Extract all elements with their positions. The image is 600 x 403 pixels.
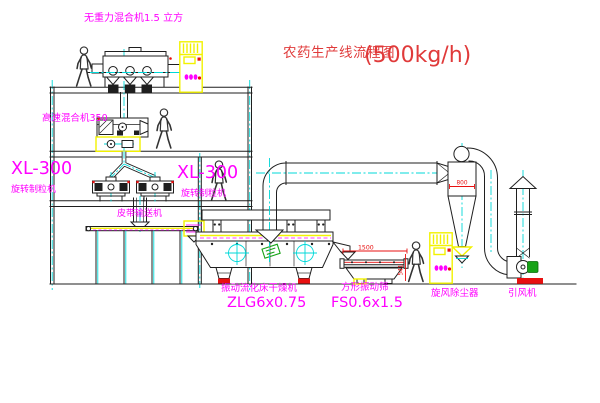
- square-vibrating-sieve: 1500 541: [333, 242, 408, 284]
- dryer-foot: [216, 268, 232, 284]
- cyclone-name-label: 旋风除尘器: [431, 287, 479, 299]
- granulator-right-model-label: XL-300: [177, 163, 238, 183]
- fluid-bed-dryer: [196, 210, 333, 284]
- person-figure: [157, 109, 172, 148]
- granulator-left-name-label: 旋转制粒机: [11, 183, 56, 195]
- belt-conveyor-label: 皮带输送机: [117, 207, 162, 219]
- fan-motor: [528, 262, 539, 273]
- dryer-model-label: ZLG6x0.75: [227, 295, 306, 311]
- granulator-left-model-label: XL-300: [11, 159, 72, 179]
- discharge-valve: [453, 247, 472, 256]
- fan-base: [517, 278, 543, 284]
- sieve-length-dim: 1500: [358, 245, 374, 252]
- sieve-body: [346, 268, 402, 279]
- induced-draft-fan: [507, 257, 543, 284]
- y-distribution-pipe: [111, 152, 155, 178]
- dryer-foot: [296, 268, 312, 284]
- sieve-feed-chute: [333, 242, 350, 252]
- sieve-model-label: FS0.6x1.5: [331, 295, 403, 311]
- high-speed-mixer-label: 高速混合机350: [42, 112, 108, 124]
- cyclone-dia-dim: 800: [456, 181, 467, 187]
- cyclone-outlet: [454, 146, 469, 161]
- conveyor-legs: [96, 231, 182, 284]
- control-cabinet-lower: [430, 233, 452, 283]
- granulator-right-name-label: 旋转制粒机: [181, 187, 226, 199]
- diagram-capacity: (500kg/h): [364, 43, 471, 68]
- cad-drawing: 1500 541 800: [0, 0, 600, 403]
- control-cabinet-upper: [180, 42, 202, 92]
- dryer-name-label: 振动流化床干燥机: [221, 282, 298, 294]
- person-figure: [409, 242, 424, 282]
- chimney-cap: [510, 177, 536, 189]
- cyclone-barrel: [448, 162, 476, 196]
- rotary-granulator-right: [136, 172, 174, 202]
- pesticide-line-flow-diagram: 1500 541 800: [0, 0, 600, 403]
- fan-name-label: 引风机: [508, 287, 537, 299]
- sieve-name-label: 方形振动筛: [341, 281, 389, 293]
- person-figure: [77, 47, 92, 86]
- gravity-mixer-label: 无重力混合机1.5 立方: [84, 11, 183, 24]
- rotary-granulator-left: [92, 172, 130, 202]
- sieve-height-dim: 541: [399, 264, 405, 275]
- dryer-hood: [202, 210, 330, 220]
